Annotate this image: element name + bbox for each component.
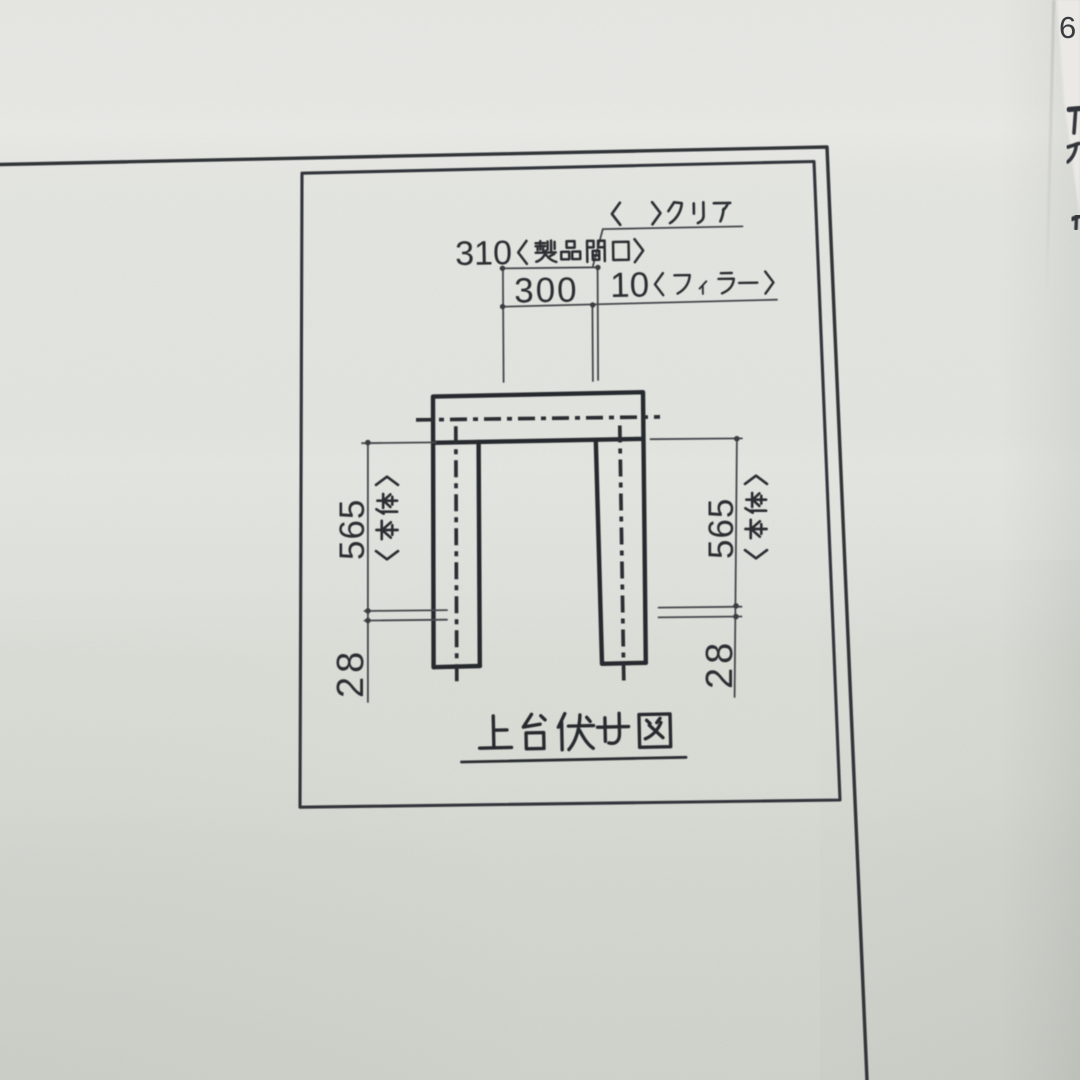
svg-text:28: 28 bbox=[699, 639, 741, 689]
svg-text:565: 565 bbox=[702, 498, 741, 559]
svg-text:310: 310 bbox=[455, 234, 512, 273]
svg-text:300: 300 bbox=[514, 270, 579, 310]
svg-text:6: 6 bbox=[1059, 10, 1076, 45]
svg-text:565: 565 bbox=[333, 499, 372, 560]
svg-text:10: 10 bbox=[610, 265, 650, 305]
